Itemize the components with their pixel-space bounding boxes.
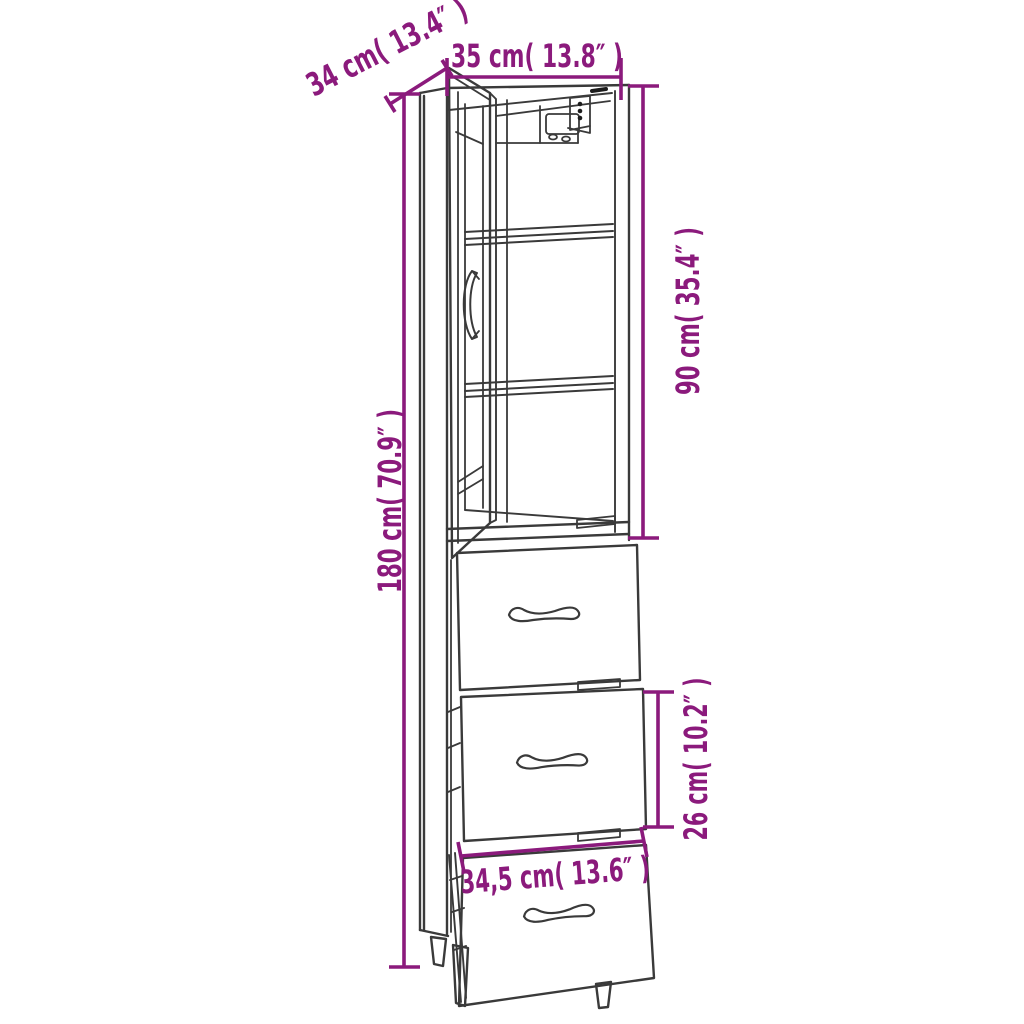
cabinet-legs	[431, 937, 468, 1006]
cabinet-left-side-panel	[420, 88, 451, 936]
dimension-line-upper-section-height	[628, 86, 659, 538]
drawer-1	[457, 545, 640, 690]
dimension-line-depth	[385, 60, 452, 112]
dimension-label-upper-section-height: 90 cm( 35.4″ )	[669, 227, 707, 395]
dimension-line-drawer-height	[643, 692, 674, 827]
cabinet-dimension-diagram: 34 cm( 13.4″ ) 35 cm( 13.8″ ) 90 cm( 35.…	[0, 0, 1024, 1024]
drawer-2-handle-icon	[517, 754, 587, 769]
cabinet-glass-door	[449, 68, 496, 558]
drawer-1-handle-icon	[509, 608, 579, 622]
door-handle-icon	[464, 271, 479, 339]
dimension-label-total-height: 180 cm( 70.9″ )	[371, 409, 409, 593]
drawer-2	[448, 689, 646, 841]
shelf-lower	[465, 376, 613, 397]
shelf-upper	[465, 224, 613, 245]
drawer-3-handle-icon	[523, 904, 594, 922]
dimension-label-drawer-height: 26 cm( 10.2″ )	[677, 678, 715, 841]
dimension-label-width: 35 cm( 13.8″ )	[451, 37, 623, 75]
hinge-damper-detail	[546, 89, 606, 142]
dimension-diagram-page: 34 cm( 13.4″ ) 35 cm( 13.8″ ) 90 cm( 35.…	[0, 0, 1024, 1024]
